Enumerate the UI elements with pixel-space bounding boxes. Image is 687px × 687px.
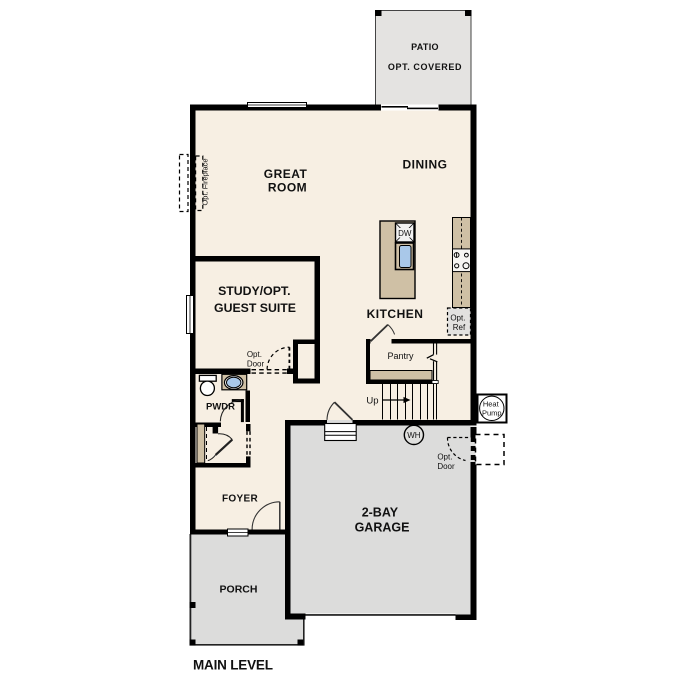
svg-text:Opt. Fireplace: Opt. Fireplace xyxy=(201,158,210,205)
svg-text:Opt. Door: Opt. Door xyxy=(247,350,265,369)
svg-text:OPT. COVERED: OPT. COVERED xyxy=(388,62,462,72)
svg-text:GREAT ROOM: GREAT ROOM xyxy=(264,167,311,195)
svg-text:Up: Up xyxy=(366,396,378,407)
svg-text:PATIO: PATIO xyxy=(411,42,439,52)
svg-text:PORCH: PORCH xyxy=(220,584,258,596)
svg-text:Opt. Door: Opt. Door xyxy=(437,453,455,472)
svg-text:2-BAY GARAGE: 2-BAY GARAGE xyxy=(355,506,410,535)
svg-text:WH: WH xyxy=(407,431,421,440)
svg-text:DW: DW xyxy=(398,229,412,238)
svg-text:KITCHEN: KITCHEN xyxy=(367,307,424,321)
svg-text:MAIN LEVEL: MAIN LEVEL xyxy=(193,658,273,673)
svg-text:Opt. Ref: Opt. Ref xyxy=(450,313,467,332)
svg-text:FOYER: FOYER xyxy=(222,494,258,505)
svg-text:Pantry: Pantry xyxy=(387,351,414,361)
svg-text:Heat Pump: Heat Pump xyxy=(482,399,502,417)
svg-text:DINING: DINING xyxy=(403,158,448,172)
svg-text:PWDR: PWDR xyxy=(206,402,235,413)
